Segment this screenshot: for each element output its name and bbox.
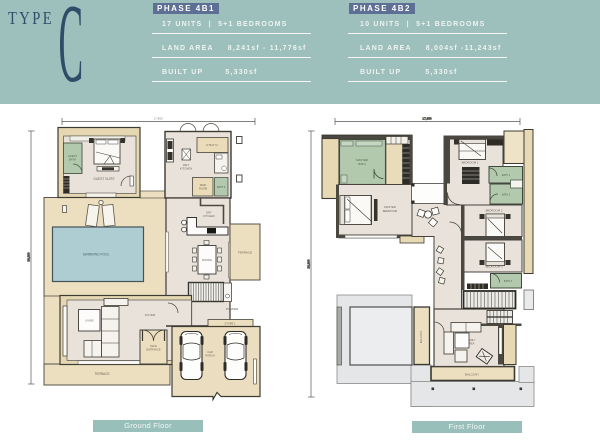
svg-text:BEDROOM 3: BEDROOM 3 bbox=[486, 265, 503, 269]
svg-text:26,200: 26,200 bbox=[307, 259, 311, 269]
svg-text:BALCONY: BALCONY bbox=[465, 373, 479, 377]
svg-text:BATH: BATH bbox=[358, 162, 365, 166]
svg-text:BEDROOM 1: BEDROOM 1 bbox=[462, 161, 479, 165]
svg-text:BEDROOM: BEDROOM bbox=[383, 209, 398, 213]
svg-text:BEDROOM 2: BEDROOM 2 bbox=[486, 209, 503, 213]
svg-text:BATH 4: BATH 4 bbox=[504, 280, 513, 283]
svg-text:BATH 1: BATH 1 bbox=[502, 174, 511, 177]
svg-text:BALCONY: BALCONY bbox=[419, 331, 423, 344]
svg-text:BATH 2: BATH 2 bbox=[502, 194, 511, 197]
svg-text:17,850: 17,850 bbox=[422, 117, 432, 121]
